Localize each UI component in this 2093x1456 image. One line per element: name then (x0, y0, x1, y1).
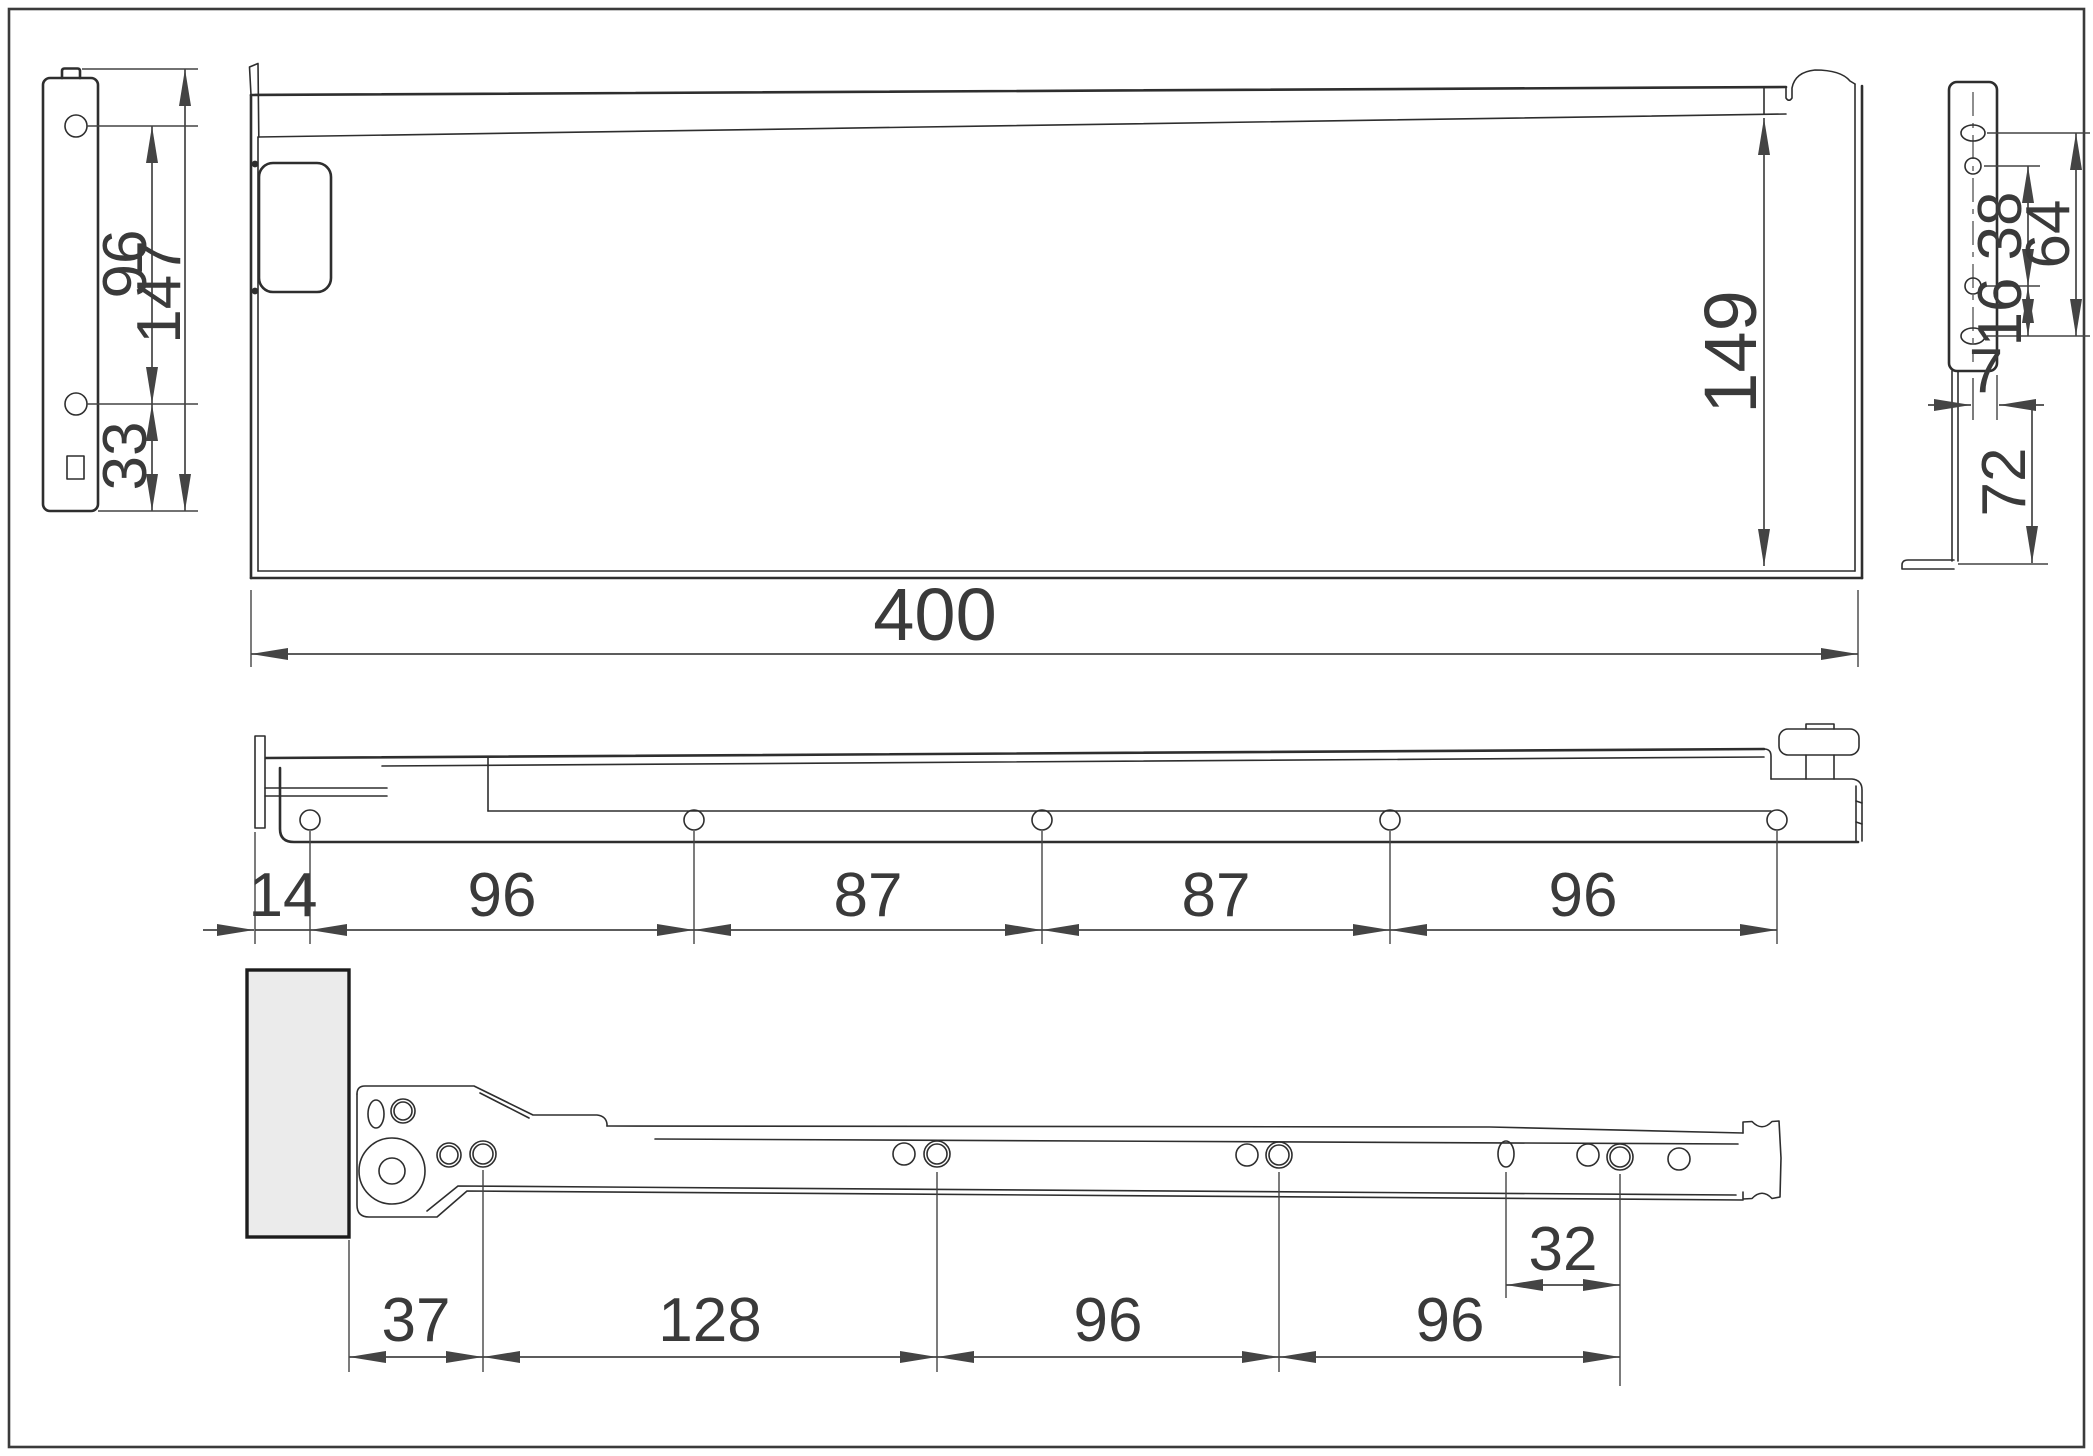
panel-cam-bump (1786, 70, 1855, 100)
dim-label-rail-s1: 96 (468, 861, 537, 930)
view-roller-slide: 32 37 128 96 96 (247, 970, 1781, 1386)
slide-hole-a (440, 1146, 458, 1164)
bracket-top-tab (62, 69, 80, 79)
dim-label-panel-length: 400 (873, 573, 996, 656)
slide-hole-i (1668, 1148, 1690, 1170)
dim-label-slide-s1: 128 (658, 1286, 761, 1355)
clip-weld-dot-top (252, 161, 259, 168)
panel-top-inner-edge (258, 114, 1786, 137)
slide-top-fold-line (480, 1093, 529, 1118)
dim-label-slide-s3: 96 (1416, 1286, 1485, 1355)
slide-bottom-edge (357, 1094, 1743, 1217)
slide-slot-front-top (368, 1100, 384, 1128)
technical-drawing: 96 147 33 149 400 (0, 0, 2093, 1456)
rail-left-flange (255, 736, 265, 828)
slide-right-end (1743, 1121, 1781, 1199)
dim-label-rail-s4: 96 (1549, 861, 1618, 930)
slide-top-edge (607, 1126, 1743, 1133)
slide-roller-wheel (359, 1138, 425, 1204)
dim-label-overall-span: 64 (2014, 200, 2083, 269)
slide-roller-axle (379, 1158, 405, 1184)
rail-top-round-end (1764, 749, 1771, 779)
rail-hole-4 (1380, 810, 1400, 830)
slide-hole-c (893, 1143, 915, 1165)
dim-label-rail-s2: 87 (834, 861, 903, 930)
slide-hole-h (1610, 1147, 1630, 1167)
dim-label-slide-s2: 96 (1074, 1286, 1143, 1355)
bracket-foot (1902, 560, 1954, 569)
panel-top-edge (251, 87, 1786, 95)
panel-front-clip (259, 163, 331, 292)
slide-hole-d (927, 1144, 947, 1164)
dim-label-bottom-offset: 33 (91, 422, 160, 491)
view-front-bracket: 96 147 33 (43, 69, 198, 512)
view-rail-hole-pattern: 14 96 87 87 96 (203, 724, 1862, 944)
slide-hole-front-top (394, 1102, 412, 1120)
view-rear-bracket-side: 38 16 64 7 72 (1902, 82, 2090, 569)
view-side-panel: 149 400 (250, 64, 1863, 668)
rail-hole-3 (1032, 810, 1052, 830)
dim-label-rail-lead: 14 (249, 861, 318, 930)
slide-hole-e (1236, 1144, 1258, 1166)
bracket-hole-top (65, 115, 87, 137)
dim-label-bracket-height: 147 (125, 240, 194, 343)
dim-label-pitch: 32 (1529, 1215, 1598, 1284)
dim-label-leg: 72 (1970, 448, 2039, 517)
slide-hole-f (1269, 1145, 1289, 1165)
dim-label-panel-height: 149 (1689, 290, 1772, 413)
clip-weld-dot-bottom (252, 288, 259, 295)
dim-label-rail-s3: 87 (1182, 861, 1251, 930)
dim-label-slide-lead: 37 (382, 1286, 451, 1355)
cabinet-front-section (247, 970, 349, 1237)
rail-bottom-edge (280, 768, 1858, 842)
slide-slot-rear (1498, 1141, 1514, 1167)
slide-upper-fold (655, 1139, 1738, 1144)
drawing-page: 96 147 33 149 400 (0, 0, 2093, 1456)
rail-cam-knob (1779, 729, 1859, 755)
rail-hole-5 (1767, 810, 1787, 830)
rail-hole-1 (300, 810, 320, 830)
bracket-square-hole (67, 456, 84, 479)
bracket-hole-bottom (65, 393, 87, 415)
rail-hole-2 (684, 810, 704, 830)
dim-label-offset: 7 (1969, 337, 2003, 406)
slide-hole-g (1577, 1144, 1599, 1166)
rail-right-bracket (1771, 779, 1862, 841)
slide-hole-b (473, 1144, 493, 1164)
bracket-body (43, 78, 98, 511)
